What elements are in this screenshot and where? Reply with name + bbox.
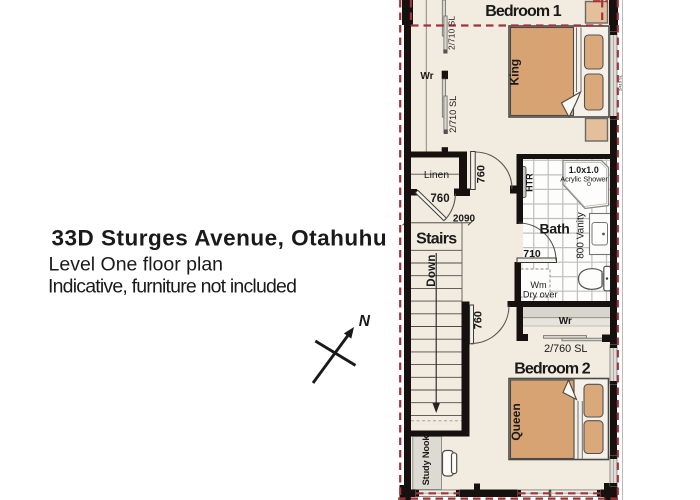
svg-text:760: 760 xyxy=(476,165,488,183)
svg-text:Wm: Wm xyxy=(530,280,547,290)
svg-text:Linen: Linen xyxy=(424,170,449,181)
svg-text:Level One floor plan: Level One floor plan xyxy=(49,254,224,276)
svg-text:N: N xyxy=(359,313,371,330)
svg-text:2/760 SL: 2/760 SL xyxy=(544,343,587,355)
svg-text:Indicative, furniture not incl: Indicative, furniture not included xyxy=(48,276,296,298)
svg-text:Dry over: Dry over xyxy=(523,290,558,300)
svg-text:Queen: Queen xyxy=(509,403,523,440)
svg-text:Wr: Wr xyxy=(420,71,433,82)
svg-text:2/710 SL: 2/710 SL xyxy=(446,16,456,50)
svg-text:33D Sturges Avenue, Otahuhu: 33D Sturges Avenue, Otahuhu xyxy=(52,225,388,250)
svg-text:760: 760 xyxy=(473,311,485,329)
svg-text:HTR: HTR xyxy=(524,173,534,192)
svg-text:1.0x1.0: 1.0x1.0 xyxy=(569,165,599,175)
svg-text:760: 760 xyxy=(430,193,449,205)
svg-text:Study Nook: Study Nook xyxy=(421,435,431,486)
svg-text:2/410 SL: 2/410 SL xyxy=(617,74,622,91)
svg-text:Bedroom 2: Bedroom 2 xyxy=(514,361,590,378)
svg-text:Down: Down xyxy=(426,254,438,287)
svg-text:Bedroom 1: Bedroom 1 xyxy=(485,3,561,20)
svg-text:710: 710 xyxy=(523,248,541,260)
svg-text:Stairs: Stairs xyxy=(416,231,457,248)
svg-text:2/710 SL: 2/710 SL xyxy=(448,96,458,133)
svg-text:Bath: Bath xyxy=(540,221,570,237)
svg-text:King: King xyxy=(508,59,522,86)
svg-text:2090: 2090 xyxy=(453,213,476,224)
svg-text:Wr: Wr xyxy=(559,316,572,327)
svg-text:800 Vanity: 800 Vanity xyxy=(576,212,587,259)
svg-text:Acrylic Shower: Acrylic Shower xyxy=(560,174,608,183)
